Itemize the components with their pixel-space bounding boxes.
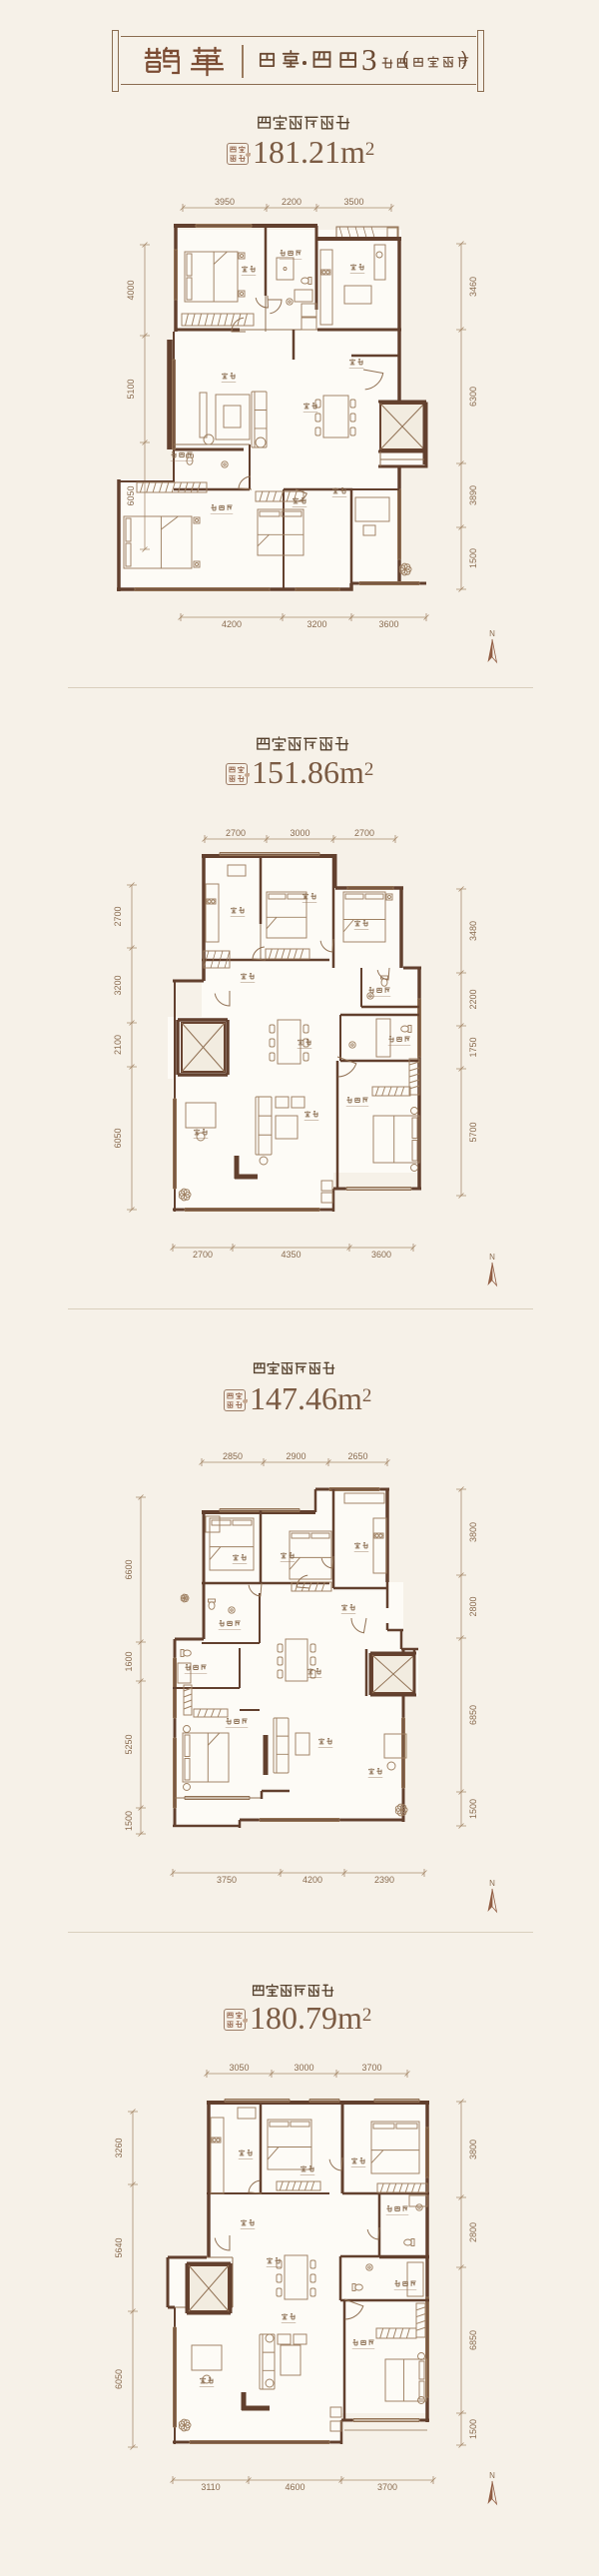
svg-text:2900: 2900: [286, 1451, 305, 1461]
svg-text:2700: 2700: [113, 906, 123, 926]
svg-text:3050: 3050: [229, 2063, 249, 2073]
svg-text:2100: 2100: [113, 1035, 123, 1055]
svg-text:1500: 1500: [468, 548, 478, 568]
svg-text:3000: 3000: [294, 2063, 313, 2073]
svg-text:3260: 3260: [114, 2138, 124, 2157]
svg-text:1750: 1750: [468, 1037, 478, 1057]
svg-text:3800: 3800: [468, 1522, 478, 1542]
svg-text:2800: 2800: [468, 1596, 478, 1616]
svg-text:2700: 2700: [354, 828, 374, 838]
svg-text:N: N: [489, 1253, 495, 1262]
svg-text:6850: 6850: [468, 2330, 478, 2350]
svg-text:1500: 1500: [124, 1811, 134, 1831]
svg-text:3500: 3500: [343, 197, 363, 207]
svg-text:1500: 1500: [468, 1799, 478, 1819]
svg-text:2850: 2850: [223, 1451, 243, 1461]
svg-text:2200: 2200: [468, 989, 478, 1009]
svg-text:3000: 3000: [290, 828, 309, 838]
svg-text:3950: 3950: [215, 197, 235, 207]
svg-text:3200: 3200: [306, 619, 326, 629]
svg-text:2700: 2700: [193, 1250, 213, 1260]
svg-text:3750: 3750: [217, 1875, 237, 1885]
svg-text:6050: 6050: [126, 485, 136, 505]
svg-text:3110: 3110: [201, 2482, 220, 2492]
svg-text:5100: 5100: [126, 379, 136, 399]
svg-text:6600: 6600: [124, 1559, 134, 1579]
svg-text:3480: 3480: [468, 921, 478, 941]
svg-text:N: N: [489, 629, 495, 638]
svg-text:3600: 3600: [371, 1250, 391, 1260]
svg-text:4600: 4600: [285, 2482, 304, 2492]
svg-text:4000: 4000: [126, 280, 136, 300]
svg-text:N: N: [489, 2471, 495, 2480]
svg-text:6300: 6300: [468, 387, 478, 407]
svg-text:2800: 2800: [468, 2222, 478, 2242]
svg-text:6050: 6050: [114, 2369, 124, 2389]
svg-text:3700: 3700: [377, 2482, 397, 2492]
svg-text:2700: 2700: [226, 828, 246, 838]
svg-text:2650: 2650: [347, 1451, 367, 1461]
svg-text:1600: 1600: [124, 1651, 134, 1671]
svg-text:3460: 3460: [468, 277, 478, 297]
svg-text:2200: 2200: [282, 197, 301, 207]
svg-text:2390: 2390: [374, 1875, 394, 1885]
svg-text:3200: 3200: [113, 975, 123, 995]
svg-text:4200: 4200: [302, 1875, 322, 1885]
svg-text:5640: 5640: [114, 2237, 124, 2257]
svg-text:1500: 1500: [468, 2419, 478, 2439]
svg-text:N: N: [489, 1879, 495, 1888]
svg-text:4350: 4350: [281, 1250, 300, 1260]
svg-text:3800: 3800: [468, 2140, 478, 2159]
svg-text:5700: 5700: [468, 1122, 478, 1142]
svg-text:3890: 3890: [468, 485, 478, 505]
svg-text:6850: 6850: [468, 1705, 478, 1725]
svg-text:5250: 5250: [124, 1734, 134, 1754]
svg-text:3700: 3700: [361, 2063, 381, 2073]
svg-text:6050: 6050: [113, 1128, 123, 1148]
svg-text:3600: 3600: [378, 619, 398, 629]
svg-text:4200: 4200: [222, 619, 242, 629]
